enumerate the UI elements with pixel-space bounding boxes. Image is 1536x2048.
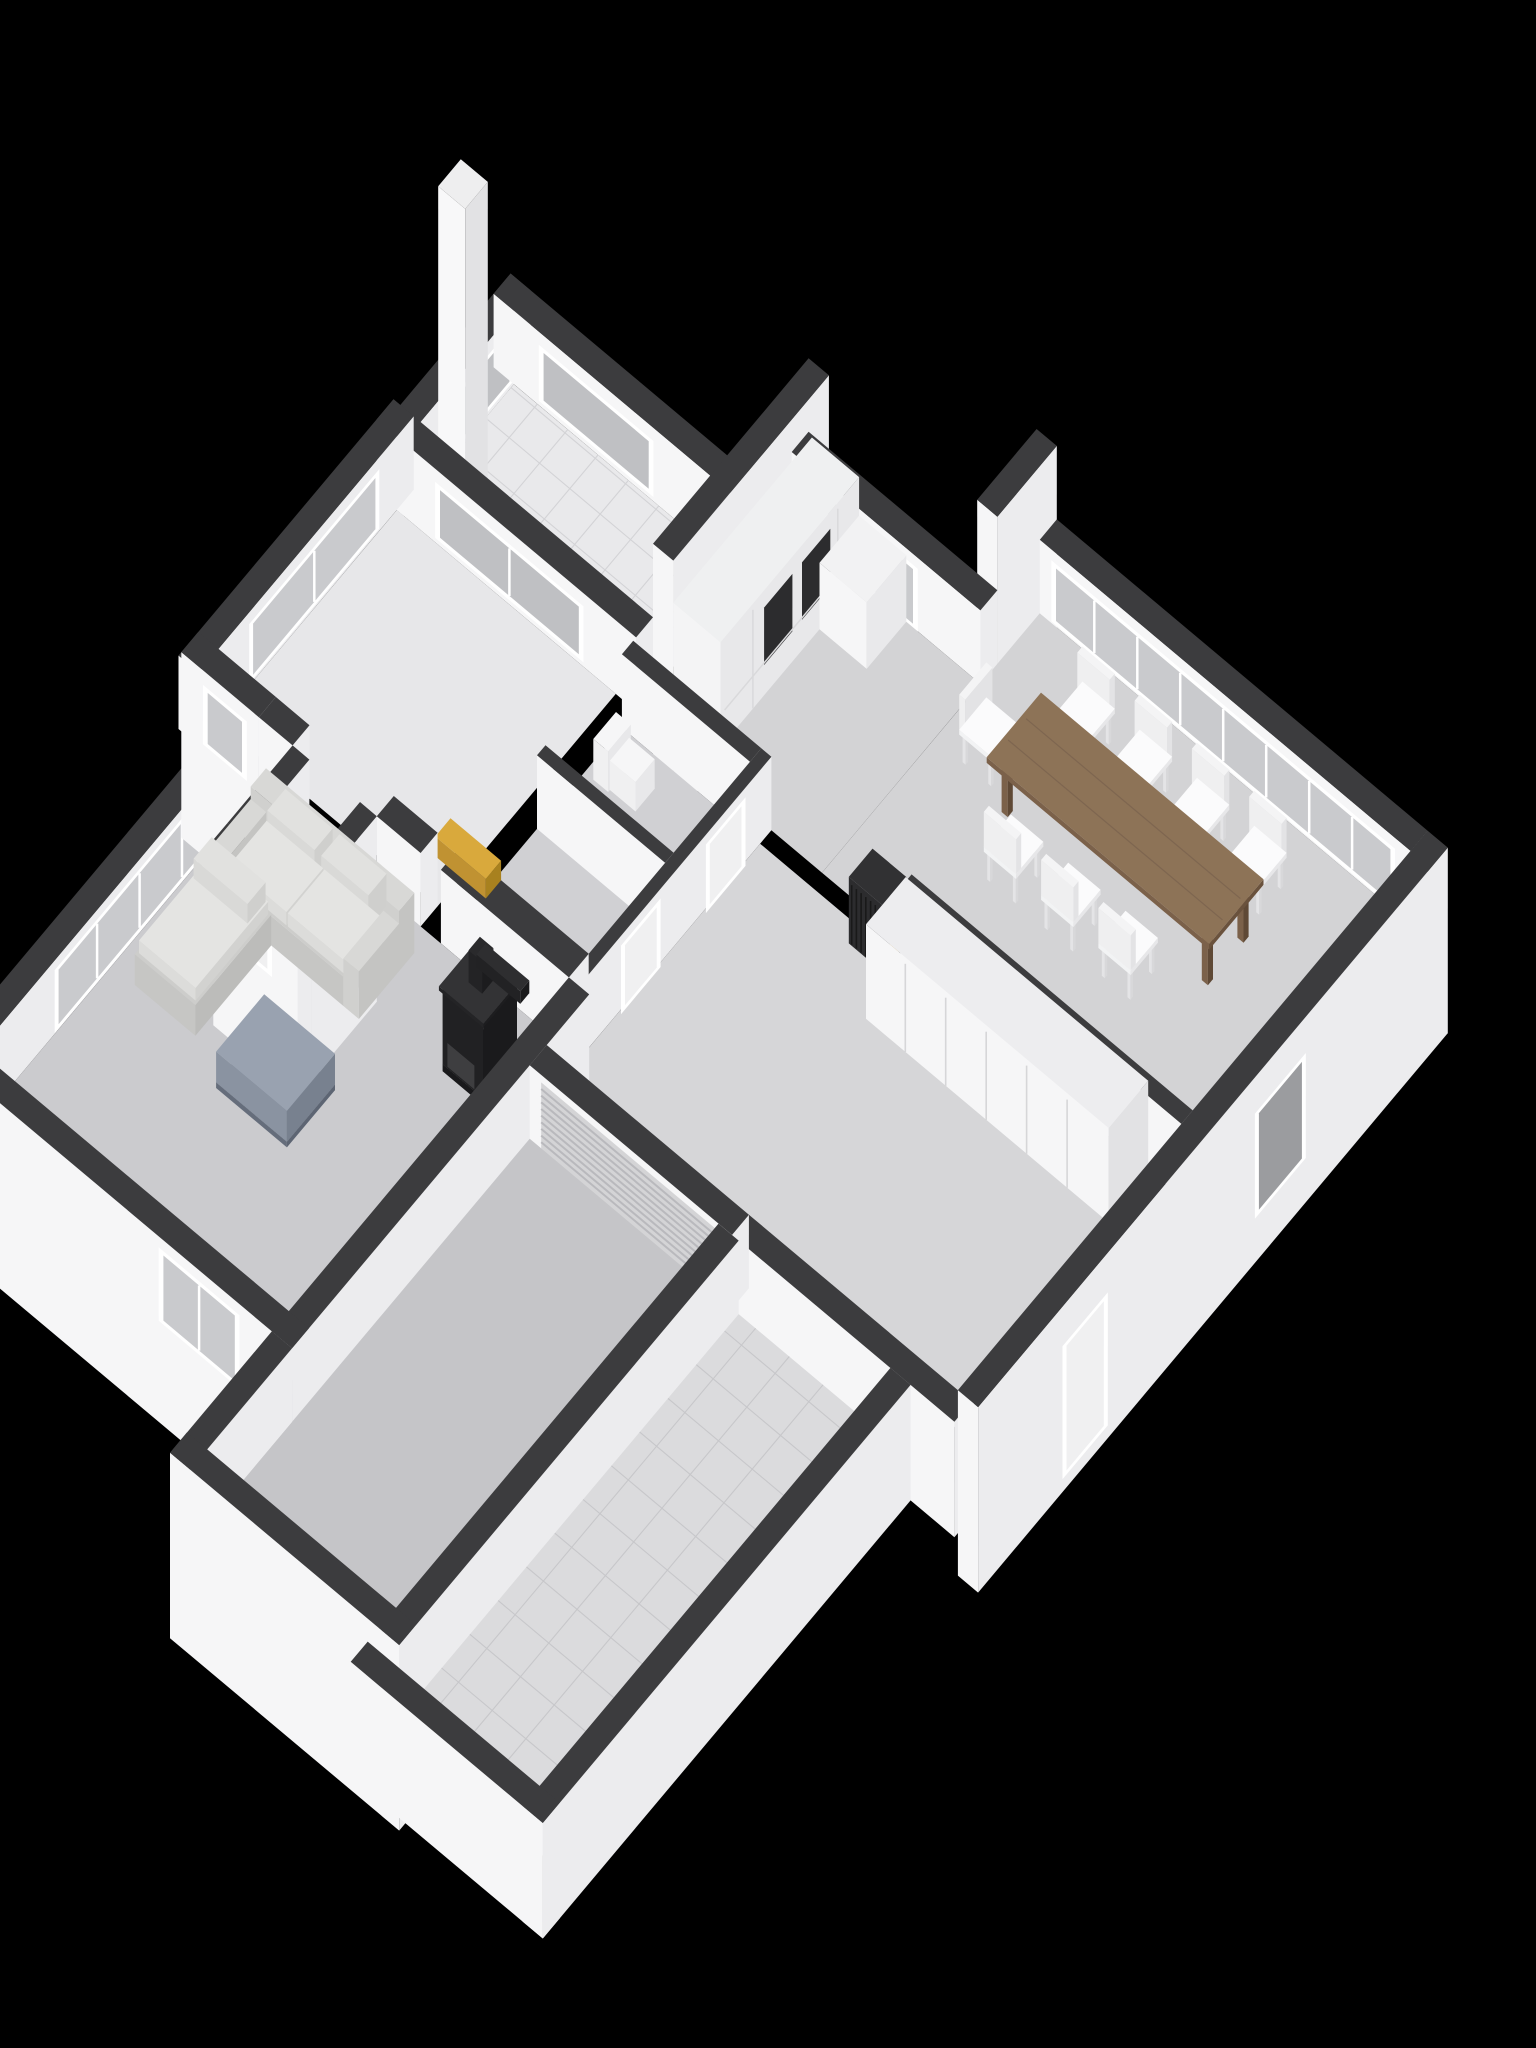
floorplan-3d-render [0, 0, 1536, 2048]
floorplan-3d-viewport [0, 0, 1536, 2048]
